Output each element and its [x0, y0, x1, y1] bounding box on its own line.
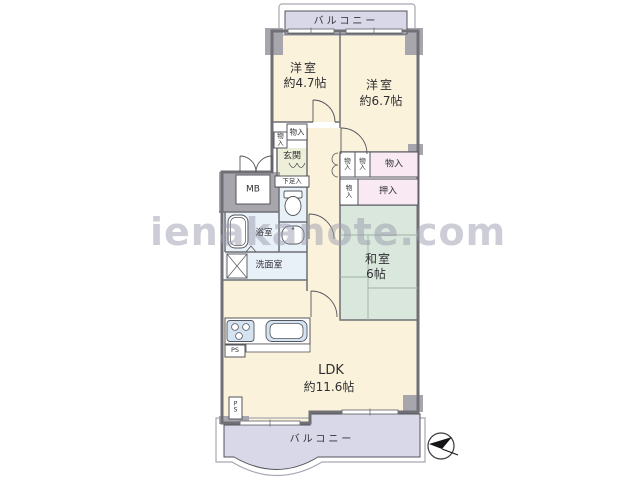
pipe-space-south-label: PS: [232, 402, 239, 415]
meter-box-label: MB: [246, 184, 260, 195]
pipe-space-kitchen-label: PS: [231, 347, 239, 355]
washroom-label: 洗面室: [255, 261, 282, 272]
closet-hall-a-label: 物入: [343, 158, 352, 172]
ldk-size: 約11.6帖: [304, 380, 355, 394]
closet-top-left-label: 物入: [276, 133, 285, 147]
bedroom-large-size: 約6.7帖: [359, 94, 402, 108]
bedroom-small-size: 約4.7帖: [283, 76, 326, 90]
bedroom-large-label: 洋室: [366, 78, 394, 92]
floor-plan: ienakanote.com バルコニー 洋室 約4.7帖 洋室 約6.7帖 物…: [0, 0, 640, 480]
bathroom-label: 浴室: [255, 228, 272, 238]
watermark: ienakanote.com: [150, 213, 506, 251]
stove-icon: [227, 321, 254, 342]
shoe-cabinet-label: 下足入: [282, 178, 302, 186]
oshiire-label: 押入: [379, 187, 397, 198]
balcony-bottom-label: バルコニー: [290, 434, 355, 446]
sink-icon: [266, 321, 307, 342]
closet-mid-label: 物入: [345, 185, 354, 199]
ldk-label: LDK: [318, 363, 344, 379]
entrance-label: 玄関: [283, 152, 301, 163]
washing-machine-icon: [227, 254, 247, 278]
closet-wide-label: 物入: [385, 159, 403, 170]
closet-hall-b-label: 物入: [358, 158, 367, 172]
japanese-room-label: 和室: [365, 252, 391, 266]
closet-top-label: 物入: [290, 128, 305, 137]
japanese-room-size: 6帖: [366, 267, 386, 281]
compass-north-icon: [428, 433, 458, 459]
balcony-top-label: バルコニー: [314, 16, 379, 28]
bedroom-small-label: 洋室: [290, 61, 318, 75]
